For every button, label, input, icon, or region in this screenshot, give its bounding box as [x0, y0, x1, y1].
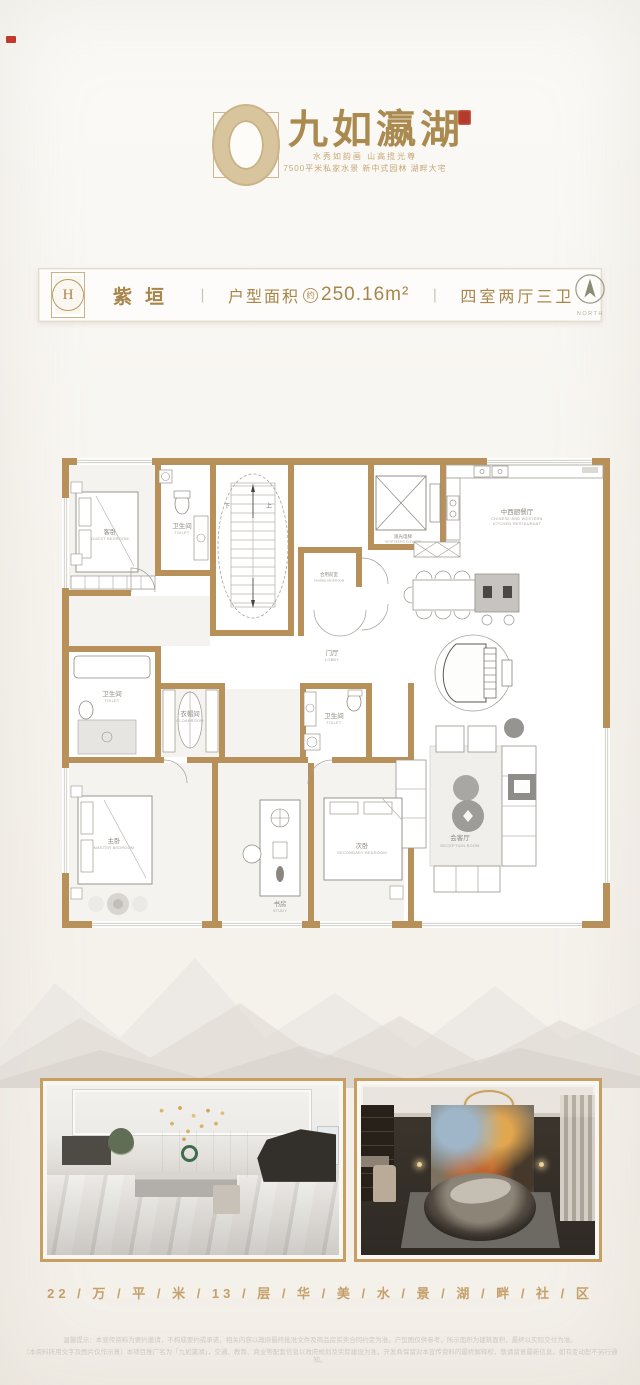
bedside-lamp: [417, 1162, 422, 1167]
unit-area: 户型面积 约 250.16m²: [228, 283, 409, 307]
room-label-reception-en: RECEPTION ROOM: [440, 844, 479, 848]
room-label-kitchen-cn: 中西厨餐厅: [501, 507, 534, 516]
stair-up-label: 上: [266, 502, 272, 510]
room-label-master-en: MASTER BEDROOM: [94, 846, 135, 850]
room-label-toilet-top-cn: 卫生间: [172, 521, 192, 530]
unit-emblem-letter: H: [52, 279, 84, 311]
plant: [108, 1128, 134, 1158]
poster-page: 九如瀛湖 水秀如韵画 山高揽光尊 7500平米私家水景 新中式园林 湖畔大宅 H…: [0, 0, 640, 1385]
divider: 丨: [195, 285, 210, 306]
compass-label: NORTH: [574, 311, 606, 317]
tv-panel: [62, 1136, 112, 1165]
room-label-toilet-left-cn: 卫生间: [102, 689, 122, 698]
room-label-toilet-mid-cn: 卫生间: [324, 711, 344, 720]
compass-icon: [574, 273, 606, 305]
room-label-guest-cn: 客卧: [104, 527, 118, 536]
divider: 丨: [427, 285, 442, 306]
floor-plan: 下 上 观光电梯 SIGHTSEEING ELEVATOR: [62, 458, 610, 928]
red-corner-mark: [6, 36, 16, 43]
brand-seal-icon: [458, 110, 471, 125]
room-label-toilet-mid-en: TOILET: [326, 721, 341, 725]
area-approx-badge: 约: [303, 288, 318, 303]
desk-chair: [373, 1165, 396, 1202]
room-label-secondary-en: SECONDARY BEDROOM: [337, 851, 387, 855]
room-label-master-cn: 主卧: [108, 836, 122, 845]
area-value: 250.16m²: [321, 284, 409, 306]
room-label-cloakroom-en: CLOAKROOM: [176, 719, 203, 723]
room-label-secondary-cn: 次卧: [356, 841, 370, 850]
brand-tagline-2: 7500平米私家水景 新中式园林 湖畔大宅: [205, 163, 525, 174]
disclaimer-line-2: （本资料所用文字及图片仅作示意）本项目推广名为「九如瀛湖」，交通、教育、商业等配…: [20, 1349, 620, 1365]
room-label-lobby-cn: 门厅: [326, 648, 340, 657]
room-label-toilet-top-en: TOILET: [174, 531, 189, 535]
room-label-anteroom-en: SHARED ANTEROOM: [314, 579, 345, 583]
brand-tagline-1: 水秀如韵画 山高揽光尊: [225, 151, 505, 162]
bedside-lamp: [539, 1162, 544, 1167]
room-label-cloakroom-cn: 衣帽间: [180, 709, 200, 718]
brand-name: 九如瀛湖: [288, 108, 478, 152]
grand-piano: [435, 635, 512, 711]
unit-name: 紫垣: [113, 282, 177, 309]
unit-emblem: H: [51, 272, 85, 318]
disclaimer-line-1: 温馨提示：本宣传资料为要约邀请，不构成要约或承诺，相关内容以政府最终批准文件及商…: [20, 1337, 620, 1345]
unit-info-banner: H 紫垣 丨 户型面积 约 250.16m² 丨 四室两厅三卫 NORTH: [38, 268, 602, 322]
room-label-guest-en: GUEST BEDROOM: [91, 537, 129, 541]
footer-tagline: 22 / 万 / 平 / 米 / 13 / 层 / 华 / 美 / 水 / 景 …: [0, 1283, 640, 1302]
area-label: 户型面积: [228, 283, 300, 307]
compass: NORTH: [574, 273, 606, 317]
photo-bedroom: [354, 1078, 602, 1262]
curtains: [560, 1095, 595, 1221]
room-label-reception-cn: 会客厅: [450, 833, 470, 842]
photo-living-room: [40, 1078, 346, 1262]
room-label-anteroom-cn: 合用前室: [320, 571, 338, 578]
chair: [213, 1185, 239, 1214]
chandelier: [152, 1095, 232, 1147]
room-count-label: 四室两厅三卫: [460, 283, 574, 307]
room-label-toilet-left-en: TOILET: [104, 699, 119, 703]
room-label-lobby-en: LOBBY: [325, 658, 339, 662]
stair-down-label: 下: [224, 503, 230, 510]
room-label-kitchen-en1: CHINESE AND WESTERN: [491, 517, 542, 521]
room-label-kitchen-en2: KITCHEN RESTAURANT: [493, 522, 542, 526]
mountain-watermark: [0, 898, 640, 1088]
